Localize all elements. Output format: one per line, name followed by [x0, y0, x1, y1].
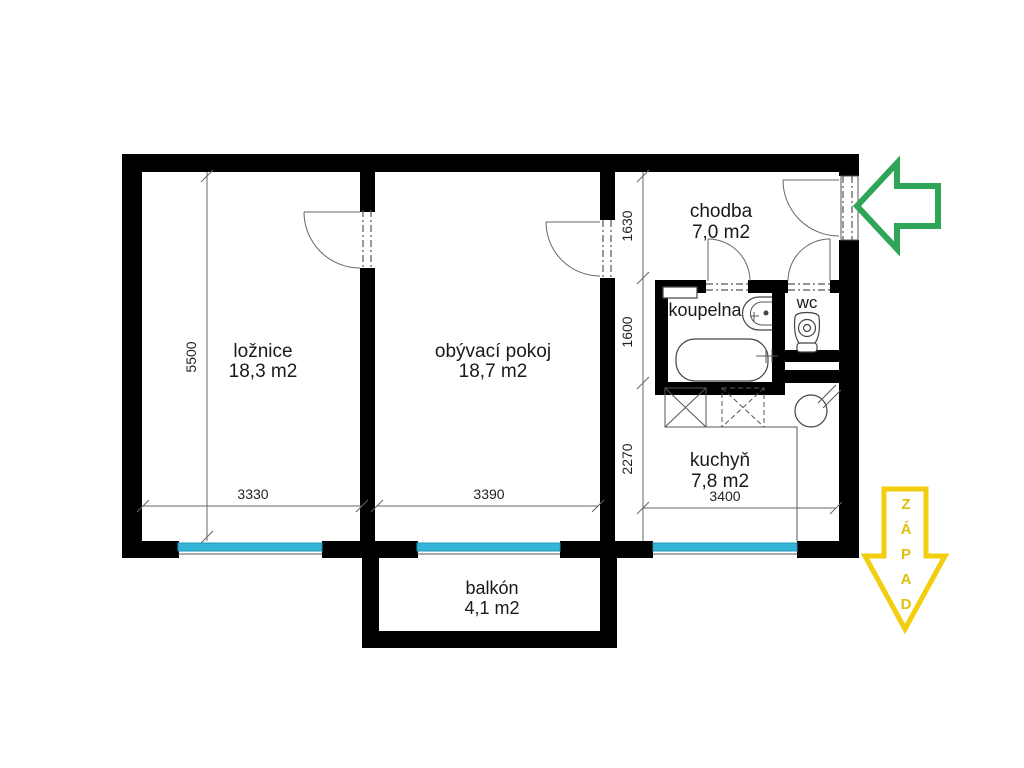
- room-area-chodba: 7,0 m2: [692, 222, 750, 243]
- west-letter-4: A: [901, 571, 912, 588]
- dimension-label-1600: 1600: [619, 316, 635, 347]
- room-labels: ložnice 18,3 m2 obývací pokoj 18,7 m2 ch…: [229, 201, 818, 618]
- door-bedroom: [304, 210, 371, 268]
- dimension-left: 5500: [183, 170, 213, 543]
- entrance-arrow-icon: [857, 163, 938, 249]
- room-area-obyvaci-pokoj: 18,7 m2: [459, 361, 528, 382]
- floor-plan-page: 5500 1630 1600 2270 3330 3390 3400: [0, 0, 1024, 768]
- wall-bathroom-wc-divider: [772, 280, 785, 395]
- room-label-koupelna: koupelna: [668, 300, 742, 320]
- wall-balcony-bottom: [362, 631, 617, 648]
- room-label-chodba: chodba: [690, 201, 753, 222]
- fixtures: [663, 287, 841, 541]
- wall-living-hall-upper: [600, 172, 615, 220]
- west-letter-3: P: [901, 546, 911, 563]
- window-balcony-door: [417, 543, 560, 551]
- door-living-room: [546, 220, 611, 278]
- west-letter-1: Z: [901, 496, 910, 513]
- washbasin-icon: [743, 297, 773, 330]
- dimension-label-3330: 3330: [237, 486, 268, 502]
- wall-right-lower: [839, 240, 859, 558]
- wall-wc-niche-bottom: [785, 370, 839, 383]
- bathtub-icon: [676, 339, 778, 381]
- room-label-loznice: ložnice: [233, 341, 292, 362]
- room-area-kuchyn: 7,8 m2: [691, 471, 749, 492]
- kitchen-sink-icon: [795, 385, 841, 427]
- wall-top: [122, 154, 859, 172]
- shelf-icon: [663, 287, 697, 298]
- wall-bottom-seg: [797, 541, 859, 558]
- door-bathroom: [706, 239, 750, 290]
- wall-right-upper: [839, 154, 859, 176]
- west-arrow-icon: Z Á P A D: [865, 489, 945, 629]
- west-letter-2: Á: [901, 521, 912, 538]
- toilet-icon: [795, 313, 820, 353]
- wall-bedroom-living-upper: [360, 172, 375, 212]
- west-letter-5: D: [901, 596, 912, 613]
- window-bedroom: [178, 543, 322, 551]
- room-area-loznice: 18,3 m2: [229, 361, 298, 382]
- room-label-balkon: balkón: [465, 578, 518, 598]
- dimension-label-1630: 1630: [619, 210, 635, 241]
- dimension-label-5500: 5500: [183, 341, 199, 372]
- dimension-label-2270: 2270: [619, 443, 635, 474]
- dimension-right: 1630 1600 2270: [619, 170, 649, 541]
- door-entrance: [783, 176, 858, 240]
- floor-plan-svg: 5500 1630 1600 2270 3330 3390 3400: [0, 0, 1024, 768]
- windows: [178, 543, 797, 554]
- room-label-kuchyn: kuchyň: [690, 450, 750, 471]
- wall-bottom-seg: [122, 541, 179, 558]
- wall-bathroom-top-seg: [830, 280, 839, 293]
- room-label-wc: wc: [796, 293, 818, 312]
- doors: [304, 176, 858, 290]
- dimension-label-3390: 3390: [473, 486, 504, 502]
- room-area-balkon: 4,1 m2: [464, 598, 519, 618]
- wall-left: [122, 154, 142, 558]
- window-kitchen: [653, 543, 797, 551]
- door-wc: [788, 239, 830, 290]
- room-label-obyvaci-pokoj: obývací pokoj: [435, 341, 551, 362]
